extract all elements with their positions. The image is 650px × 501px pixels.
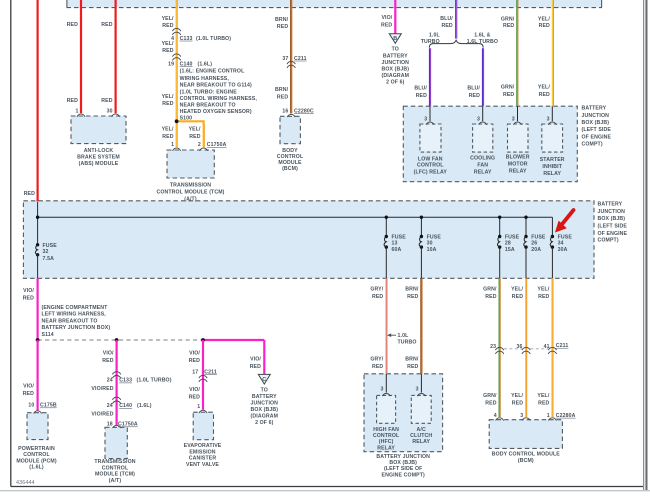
svg-text:JUNCTION: JUNCTION [598, 209, 626, 215]
svg-text:VIO/: VIO/ [23, 288, 34, 294]
svg-text:C2280C: C2280C [294, 108, 314, 114]
svg-text:RED: RED [372, 294, 383, 300]
svg-text:3: 3 [416, 387, 419, 393]
svg-text:EVAPORATIVE: EVAPORATIVE [184, 443, 222, 449]
svg-text:RED: RED [503, 92, 514, 98]
svg-text:EMISSION: EMISSION [189, 449, 215, 455]
svg-text:RELAY: RELAY [412, 439, 430, 445]
svg-text:C175B: C175B [40, 403, 57, 409]
svg-text:BATTERY: BATTERY [383, 53, 408, 59]
svg-text:BATTERY: BATTERY [582, 106, 607, 112]
svg-text:C2280A: C2280A [556, 413, 576, 419]
svg-text:C1750A: C1750A [207, 142, 227, 148]
svg-text:GRN/: GRN/ [483, 393, 497, 399]
svg-text:RED: RED [101, 98, 112, 104]
svg-text:1: 1 [75, 109, 78, 115]
svg-text:HEATED OXYGEN SENSOR): HEATED OXYGEN SENSOR) [180, 109, 252, 115]
svg-text:YEL/: YEL/ [537, 393, 549, 399]
svg-text:LEFT WIRING HARNESS,: LEFT WIRING HARNESS, [42, 311, 107, 317]
svg-text:RED: RED [162, 134, 173, 140]
svg-text:(1.6L: ENGINE CONTROL: (1.6L: ENGINE CONTROL [180, 69, 245, 75]
svg-text:(1.6L): (1.6L) [137, 403, 152, 409]
svg-text:VIO/: VIO/ [103, 350, 114, 356]
svg-text:3: 3 [520, 413, 523, 419]
svg-text:MOTOR: MOTOR [508, 161, 528, 167]
svg-text:RED: RED [441, 23, 452, 29]
svg-text:RED: RED [67, 22, 78, 28]
svg-text:RED: RED [372, 364, 383, 370]
svg-text:JUNCTION: JUNCTION [582, 113, 610, 119]
svg-text:26: 26 [531, 240, 537, 246]
svg-text:20A: 20A [531, 247, 541, 253]
svg-text:C211: C211 [294, 56, 307, 62]
svg-text:RELAY: RELAY [377, 445, 395, 451]
svg-text:(1.6L): (1.6L) [198, 61, 213, 67]
svg-text:YEL/: YEL/ [162, 41, 174, 47]
svg-text:10: 10 [28, 403, 34, 409]
svg-text:ENGINE COMPT): ENGINE COMPT) [382, 472, 426, 478]
svg-text:RED: RED [485, 294, 496, 300]
svg-text:RED: RED [162, 101, 173, 107]
svg-text:VIO/: VIO/ [23, 383, 34, 389]
svg-text:COOLING: COOLING [470, 155, 495, 161]
svg-text:BODY CONTROL MODULE: BODY CONTROL MODULE [492, 451, 561, 457]
svg-text:WIRING HARNESS,: WIRING HARNESS, [180, 76, 230, 82]
svg-text:BATTERY: BATTERY [252, 394, 277, 400]
svg-text:CONTROL: CONTROL [373, 433, 400, 439]
svg-text:BRN/: BRN/ [275, 87, 289, 93]
svg-text:CLUTCH: CLUTCH [410, 433, 432, 439]
svg-text:1: 1 [197, 404, 200, 410]
svg-text:BLU/: BLU/ [440, 16, 453, 22]
svg-text:BRAKE SYSTEM: BRAKE SYSTEM [77, 155, 120, 161]
svg-text:COMPT): COMPT) [582, 142, 603, 148]
svg-text:(A/T): (A/T) [184, 196, 197, 202]
svg-text:(BCM): (BCM) [518, 458, 534, 464]
svg-text:RED: RED [512, 294, 523, 300]
svg-text:GRN/: GRN/ [483, 287, 497, 293]
svg-text:BLU/: BLU/ [414, 85, 427, 91]
svg-text:1.0L: 1.0L [429, 33, 441, 39]
svg-text:1: 1 [547, 413, 550, 419]
svg-text:MODULE: MODULE [278, 160, 302, 166]
svg-text:RED: RED [162, 48, 173, 54]
svg-text:OF ENGINE: OF ENGINE [582, 134, 612, 140]
svg-text:YEL/: YEL/ [189, 126, 201, 132]
svg-text:30: 30 [427, 240, 433, 246]
svg-text:2: 2 [198, 142, 201, 148]
svg-text:RELAY: RELAY [543, 171, 561, 177]
svg-text:C211: C211 [204, 369, 217, 375]
svg-text:RED: RED [416, 93, 427, 99]
svg-text:(ENGINE COMPARTMENT: (ENGINE COMPARTMENT [42, 305, 109, 311]
svg-text:RED: RED [250, 364, 261, 370]
svg-text:CONTROL WIRING HARNESS,: CONTROL WIRING HARNESS, [180, 96, 258, 102]
svg-text:2 OF 6): 2 OF 6) [255, 420, 274, 426]
svg-text:S114: S114 [42, 332, 54, 338]
svg-text:RED: RED [101, 22, 112, 28]
svg-text:RED: RED [102, 358, 113, 364]
svg-text:NEAR BREAKOUT TO: NEAR BREAKOUT TO [42, 318, 98, 324]
svg-text:60A: 60A [392, 247, 402, 253]
svg-text:10A: 10A [427, 247, 437, 253]
svg-text:(1.0L TURBO: ENGINE: (1.0L TURBO: ENGINE [180, 90, 238, 96]
svg-text:RED: RED [23, 295, 34, 301]
svg-text:RED: RED [162, 23, 173, 29]
svg-text:RED: RED [538, 294, 549, 300]
svg-text:OF ENGINE: OF ENGINE [598, 231, 628, 237]
svg-text:1: 1 [171, 142, 174, 148]
svg-text:BLU/: BLU/ [467, 85, 480, 91]
svg-text:TURBO: TURBO [421, 39, 440, 45]
svg-text:18: 18 [107, 422, 113, 428]
svg-text:VIO/: VIO/ [381, 15, 392, 21]
svg-text:15A: 15A [505, 247, 515, 253]
svg-text:RED: RED [23, 391, 34, 397]
svg-text:TRANSMISSION: TRANSMISSION [170, 182, 211, 188]
svg-text:ANTI-LOCK: ANTI-LOCK [84, 148, 114, 154]
svg-text:RED: RED [189, 358, 200, 364]
svg-text:(DIAGRAM: (DIAGRAM [251, 414, 278, 420]
svg-text:YEL/: YEL/ [538, 16, 550, 22]
svg-text:RED: RED [277, 94, 288, 100]
svg-text:CONTROL: CONTROL [102, 465, 129, 471]
svg-text:VIO/RED: VIO/RED [91, 411, 113, 417]
svg-text:RED: RED [539, 23, 550, 29]
svg-text:RED: RED [538, 400, 549, 406]
svg-text:(LEFT SIDE: (LEFT SIDE [582, 127, 612, 133]
svg-text:24: 24 [107, 378, 113, 384]
svg-text:RED: RED [189, 394, 200, 400]
svg-text:(BCM): (BCM) [282, 166, 298, 172]
svg-text:CONTROL: CONTROL [417, 162, 444, 168]
svg-text:34: 34 [558, 240, 564, 246]
svg-text:BRN/: BRN/ [275, 17, 289, 23]
svg-text:23: 23 [490, 344, 496, 350]
svg-text:16: 16 [282, 108, 288, 114]
svg-text:BOX (BJB): BOX (BJB) [389, 460, 417, 466]
svg-text:YEL/: YEL/ [511, 287, 523, 293]
svg-text:JUNCTION: JUNCTION [382, 60, 410, 66]
svg-text:1.0L: 1.0L [398, 333, 410, 339]
svg-text:RED: RED [67, 98, 78, 104]
svg-text:CANISTER: CANISTER [189, 456, 217, 462]
svg-text:RED: RED [503, 23, 514, 29]
svg-text:13: 13 [392, 240, 398, 246]
svg-text:JUNCTION: JUNCTION [251, 401, 279, 407]
svg-text:2 OF 6): 2 OF 6) [386, 80, 405, 86]
svg-text:YEL/: YEL/ [162, 94, 174, 100]
svg-text:24: 24 [107, 403, 113, 409]
svg-text:INHIBIT: INHIBIT [542, 164, 562, 170]
svg-text:(A/T): (A/T) [109, 478, 122, 484]
svg-text:(LEFT SIDE OF: (LEFT SIDE OF [384, 466, 422, 472]
svg-text:30A: 30A [558, 247, 568, 253]
svg-text:MODULE (TCM): MODULE (TCM) [95, 472, 135, 478]
svg-text:(1.0L TURBO): (1.0L TURBO) [137, 378, 172, 384]
svg-text:BLOWER: BLOWER [506, 154, 530, 160]
svg-text:STARTER: STARTER [540, 157, 565, 163]
svg-text:BOX (BJB): BOX (BJB) [598, 216, 626, 222]
svg-text:RELAY: RELAY [474, 170, 492, 176]
svg-text:BOX (BJB): BOX (BJB) [250, 407, 278, 413]
svg-text:BRN/: BRN/ [405, 287, 419, 293]
svg-text:(HFC): (HFC) [379, 439, 394, 445]
svg-text:CONTROL MODULE (TCM): CONTROL MODULE (TCM) [156, 189, 224, 195]
svg-text:C1750A: C1750A [118, 422, 138, 428]
svg-text:FAN: FAN [477, 162, 488, 168]
svg-text:CONTROL: CONTROL [23, 452, 50, 458]
svg-text:TO: TO [392, 46, 399, 52]
svg-text:BOX (BJB): BOX (BJB) [381, 66, 409, 72]
svg-text:RED: RED [485, 400, 496, 406]
svg-text:YEL/: YEL/ [511, 393, 523, 399]
svg-text:32: 32 [43, 249, 49, 255]
svg-text:RED: RED [512, 400, 523, 406]
svg-text:19: 19 [168, 61, 174, 67]
svg-text:B: B [393, 36, 397, 42]
svg-text:BATTERY: BATTERY [598, 202, 623, 208]
svg-text:NEAR BREAKOUT TO G114): NEAR BREAKOUT TO G114) [180, 83, 252, 89]
svg-text:4: 4 [494, 413, 497, 419]
svg-text:GRY/: GRY/ [370, 287, 383, 293]
svg-text:(1.6L): (1.6L) [29, 465, 44, 471]
svg-text:VIO/: VIO/ [189, 350, 200, 356]
svg-text:17: 17 [192, 369, 198, 375]
svg-text:(DIAGRAM: (DIAGRAM [382, 73, 409, 79]
svg-text:7.5A: 7.5A [43, 256, 55, 262]
svg-text:BATTERY JUNCTION BOX): BATTERY JUNCTION BOX) [42, 325, 111, 331]
svg-text:RED: RED [277, 24, 288, 30]
svg-text:VIO/: VIO/ [189, 387, 200, 393]
svg-text:RED: RED [189, 134, 200, 140]
svg-text:RED: RED [24, 191, 35, 197]
svg-text:436444: 436444 [16, 480, 35, 486]
svg-text:VENT VALVE: VENT VALVE [186, 462, 219, 468]
svg-text:VIO/RED: VIO/RED [91, 386, 113, 392]
svg-text:RED: RED [407, 364, 418, 370]
svg-text:28: 28 [505, 240, 511, 246]
svg-text:TO: TO [261, 388, 268, 394]
svg-text:(LFC) RELAY: (LFC) RELAY [414, 170, 448, 176]
svg-text:YEL/: YEL/ [162, 16, 174, 22]
svg-text:C: C [262, 377, 266, 383]
svg-text:3: 3 [512, 116, 515, 122]
svg-text:(LEFT SIDE: (LEFT SIDE [598, 223, 628, 229]
svg-text:C133: C133 [180, 36, 193, 42]
svg-text:1.6L TURBO: 1.6L TURBO [467, 39, 498, 45]
svg-text:3: 3 [547, 116, 550, 122]
svg-text:BRN/: BRN/ [405, 356, 419, 362]
svg-text:30: 30 [107, 109, 113, 115]
svg-text:3: 3 [424, 116, 427, 122]
svg-text:VIO/: VIO/ [250, 356, 261, 362]
svg-text:1.6L &: 1.6L & [474, 33, 490, 39]
svg-text:NEAR BREAKOUT TO: NEAR BREAKOUT TO [180, 102, 236, 108]
svg-text:C140: C140 [119, 403, 132, 409]
svg-text:C140: C140 [180, 61, 193, 67]
svg-text:RED: RED [539, 92, 550, 98]
svg-text:YEL/: YEL/ [538, 85, 550, 91]
svg-text:RED: RED [469, 93, 480, 99]
svg-text:(1.0L TURBO): (1.0L TURBO) [196, 36, 231, 42]
svg-text:LOW FAN: LOW FAN [418, 156, 443, 162]
svg-text:RED: RED [407, 294, 418, 300]
svg-text:TURBO: TURBO [398, 339, 417, 345]
svg-text:YEL/: YEL/ [162, 126, 174, 132]
svg-text:37: 37 [282, 56, 288, 62]
svg-text:MODULE (PCM): MODULE (PCM) [16, 458, 56, 464]
svg-text:BOX (BJB): BOX (BJB) [582, 120, 610, 126]
svg-text:GRY/: GRY/ [370, 356, 383, 362]
svg-text:GRN/: GRN/ [501, 85, 515, 91]
svg-text:TRANSMISSION: TRANSMISSION [94, 459, 135, 465]
svg-text:COMPT): COMPT) [598, 237, 619, 243]
svg-text:GRN/: GRN/ [501, 16, 515, 22]
svg-text:C211: C211 [556, 343, 569, 349]
svg-text:3: 3 [380, 387, 383, 393]
svg-text:(ABS) MODULE: (ABS) MODULE [79, 161, 119, 167]
svg-text:YEL/: YEL/ [537, 287, 549, 293]
svg-text:RELAY: RELAY [509, 168, 527, 174]
svg-text:RED: RED [381, 23, 392, 29]
svg-text:3: 3 [477, 116, 480, 122]
svg-text:C133: C133 [119, 378, 132, 384]
